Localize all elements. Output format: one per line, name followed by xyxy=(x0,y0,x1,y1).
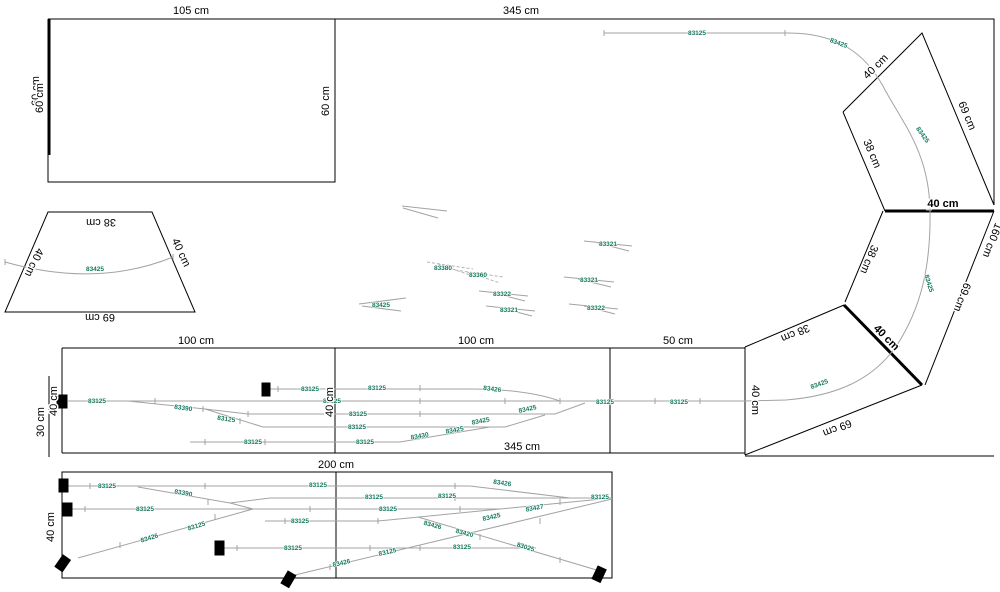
part-number-label[interactable]: 83125 xyxy=(591,494,609,501)
track-to-southeast-buffer[interactable] xyxy=(418,517,600,571)
part-number-label[interactable]: 83425 xyxy=(482,512,502,523)
part-number-label[interactable]: 83426 xyxy=(493,479,512,489)
dimension-label: 60 cm xyxy=(320,86,332,116)
part-number-label[interactable]: 83125 xyxy=(136,506,154,513)
part-number-label[interactable]: 83322 xyxy=(493,291,511,298)
dimension-label: 69 cm xyxy=(821,417,853,439)
plan-canvas[interactable]: 8312583425834258342583425834258312583125… xyxy=(0,0,1000,592)
buffer-stop[interactable] xyxy=(63,503,72,516)
buffer-stop[interactable] xyxy=(262,383,270,396)
dimension-label: 40 cm xyxy=(48,386,60,416)
part-number-label[interactable]: 83125 xyxy=(365,494,383,501)
dimension-label: 100 cm xyxy=(458,335,494,347)
part-number-label[interactable]: 83025 xyxy=(516,542,536,554)
dimension-label: 38 cm xyxy=(779,321,811,344)
dimension-label: 40 cm xyxy=(861,52,891,82)
part-number-label[interactable]: 83425 xyxy=(829,37,849,50)
part-number-label[interactable]: 83125 xyxy=(596,399,614,406)
part-number-label[interactable]: 83125 xyxy=(348,424,366,431)
part-number-label[interactable]: 83125 xyxy=(98,483,116,490)
track-joint-ticks xyxy=(5,30,932,570)
part-number-label[interactable]: 83430 xyxy=(410,431,429,441)
part-number-label[interactable]: 83427 xyxy=(525,503,544,513)
part-number-label[interactable]: 83426 xyxy=(140,532,160,544)
dimension-label: 40 cm xyxy=(324,387,336,417)
part-number-label[interactable]: 83125 xyxy=(688,30,706,37)
bold-module-joints[interactable] xyxy=(49,19,994,385)
dimension-label: 69 cm xyxy=(85,311,115,323)
part-number-label[interactable]: 83426 xyxy=(483,385,502,394)
part-number-labels[interactable]: 8312583425834258342583425834258312583125… xyxy=(86,30,935,569)
part-number-label[interactable]: 83125 xyxy=(453,544,471,551)
part-number-label[interactable]: 83125 xyxy=(284,545,302,552)
dimension-label: 38 cm xyxy=(86,216,116,228)
part-number-label[interactable]: 83125 xyxy=(217,415,236,425)
part-number-label[interactable]: 83125 xyxy=(378,547,398,558)
dimension-label: 69 cm xyxy=(951,281,973,313)
part-number-label[interactable]: 83125 xyxy=(379,506,397,513)
dimension-label: 40 cm xyxy=(927,198,958,210)
part-number-label[interactable]: 83425 xyxy=(914,126,930,145)
part-number-label[interactable]: 83360 xyxy=(469,272,487,279)
dimension-label: 100 cm xyxy=(178,335,214,347)
part-number-label[interactable]: 83425 xyxy=(471,416,490,426)
part-number-label[interactable]: 83425 xyxy=(372,302,390,309)
dimension-label: 60 cm xyxy=(34,83,46,113)
part-number-label[interactable]: 83321 xyxy=(580,277,598,284)
top-boundary-outline[interactable] xyxy=(48,19,994,205)
part-number-label[interactable]: 83125 xyxy=(670,399,688,406)
dimension-label: 345 cm xyxy=(503,5,539,17)
part-number-label[interactable]: 83125 xyxy=(244,439,262,446)
buffer-stop[interactable] xyxy=(592,566,606,582)
buffer-stop[interactable] xyxy=(281,571,296,588)
part-number-label[interactable]: 83425 xyxy=(518,404,538,415)
part-number-label[interactable]: 83125 xyxy=(356,439,374,446)
part-number-label[interactable]: 83420 xyxy=(455,528,475,540)
dimension-label: 30 cm xyxy=(35,407,47,437)
board-105x60-outline[interactable] xyxy=(48,19,335,182)
track-yard-branch-2[interactable] xyxy=(205,409,545,427)
part-number-label[interactable]: 83125 xyxy=(301,386,319,393)
track-station-1[interactable] xyxy=(68,486,612,498)
dimension-label: 345 cm xyxy=(504,441,540,453)
part-number-label[interactable]: 83322 xyxy=(587,305,605,312)
dimension-label: 105 cm xyxy=(173,5,209,17)
buffer-stop[interactable] xyxy=(215,541,224,555)
part-number-label[interactable]: 83125 xyxy=(349,411,367,418)
track-stub-southwest[interactable] xyxy=(78,509,253,558)
part-number-label[interactable]: 83125 xyxy=(88,398,106,405)
dimension-label: 40 cm xyxy=(45,512,57,542)
part-number-label[interactable]: 83125 xyxy=(438,493,456,500)
dimension-labels: 105 cm345 cm60 cm60 cm60 cm38 cm40 cm40 … xyxy=(22,5,1000,542)
part-number-label[interactable]: 83125 xyxy=(291,518,309,525)
buffer-stop[interactable] xyxy=(55,555,70,572)
part-number-label[interactable]: 83426 xyxy=(332,558,352,569)
dimension-label: 40 cm xyxy=(169,237,193,269)
dimension-label: 38 cm xyxy=(857,243,880,275)
part-number-label[interactable]: 83321 xyxy=(599,241,617,248)
part-number-label[interactable]: 83425 xyxy=(810,378,830,391)
dimension-label: 40 cm xyxy=(749,385,761,415)
part-number-label[interactable]: 83321 xyxy=(500,307,518,314)
tracks[interactable] xyxy=(5,30,932,575)
buffer-stop[interactable] xyxy=(59,479,68,492)
dimension-label: 38 cm xyxy=(860,138,883,170)
loose-turnout-pieces[interactable] xyxy=(359,206,632,316)
part-number-label[interactable]: 83125 xyxy=(187,520,207,532)
dimension-label: 40 cm xyxy=(22,246,46,278)
board-outlines[interactable] xyxy=(5,19,994,578)
part-number-label[interactable]: 83425 xyxy=(86,266,104,273)
part-number-label[interactable]: 83390 xyxy=(174,489,193,499)
dimension-label: 50 cm xyxy=(663,335,693,347)
part-number-label[interactable]: 83425 xyxy=(922,274,934,294)
part-number-label[interactable]: 83380 xyxy=(434,265,452,272)
part-number-label[interactable]: 83125 xyxy=(309,482,327,489)
dimension-label: 69 cm xyxy=(955,100,978,132)
dimension-label: 200 cm xyxy=(318,459,354,471)
part-number-label[interactable]: 83125 xyxy=(368,385,386,392)
part-number-label[interactable]: 83390 xyxy=(174,404,193,414)
part-number-label[interactable]: 83426 xyxy=(423,520,443,532)
track-station-1-branch[interactable] xyxy=(138,487,270,509)
